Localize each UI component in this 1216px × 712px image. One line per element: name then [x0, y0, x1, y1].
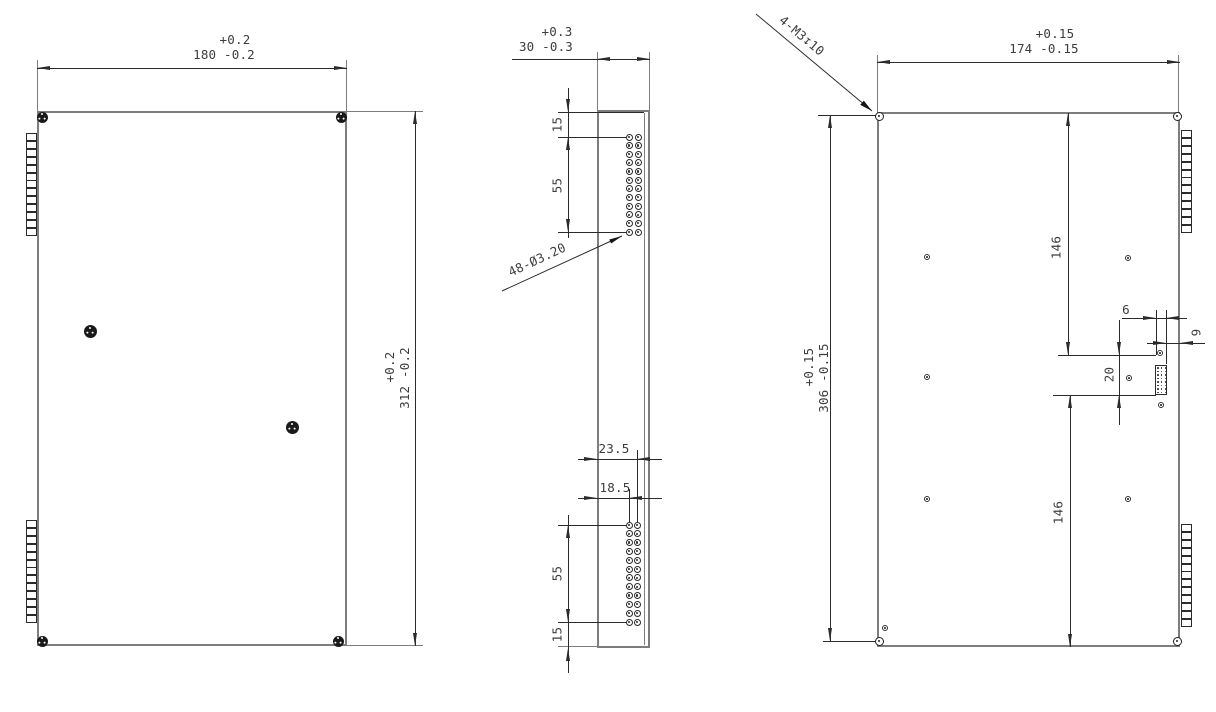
pin-hole: [634, 619, 641, 626]
connector-pin: [1181, 595, 1192, 603]
connector-footprint-dot: [1157, 371, 1159, 373]
mounting-hole: [1157, 350, 1163, 356]
pin-hole: [634, 592, 641, 599]
back-width-dimension: +0.15 174 -0.15: [999, 26, 1089, 56]
connector-pin: [1181, 130, 1192, 138]
connector-footprint-dot: [1157, 381, 1159, 383]
dimension-line: [558, 622, 629, 623]
connector-pin: [1181, 146, 1192, 154]
mounting-hole: [924, 254, 930, 260]
drawing-canvas: +0.2 180 -0.2 +0.2 312 -0.2 +0.3 30 -0.3…: [0, 0, 1216, 712]
corner-screw-hole: [1173, 637, 1182, 646]
connector-pin: [1181, 532, 1192, 540]
back-span-upper-dimension: 146: [1049, 233, 1064, 263]
dimension-arrow: [1143, 316, 1156, 320]
dimension-line: [877, 62, 1180, 63]
connector-pin: [26, 228, 37, 236]
connector-pin: [26, 615, 37, 623]
connector-pin: [26, 583, 37, 591]
connector-pin: [26, 204, 37, 212]
pin-hole: [626, 530, 633, 537]
connector-pin: [1181, 603, 1192, 611]
connector-pin: [26, 212, 37, 220]
side-offset-bottom-dimension: 15: [550, 620, 565, 650]
connector-pin: [26, 536, 37, 544]
connector-footprint-dot: [1165, 388, 1167, 390]
connector-pin: [26, 560, 37, 568]
side-width-value: 30 -0.3: [501, 39, 591, 54]
dimension-line: [818, 115, 877, 116]
dimension-arrow: [584, 457, 597, 461]
dimension-arrow: [1068, 395, 1072, 408]
dimension-line: [1119, 320, 1120, 425]
connector-pin: [26, 165, 37, 173]
front-height-tol-plus: +0.2: [382, 317, 397, 417]
mounting-hole: [924, 496, 930, 502]
dimension-line: [1058, 355, 1156, 356]
connector-pin: [26, 133, 37, 141]
pin-hole: [634, 557, 641, 564]
connector-pin: [1181, 154, 1192, 162]
pin-hole: [626, 574, 633, 581]
connector-footprint-dot: [1165, 367, 1167, 369]
dimension-arrow: [597, 57, 610, 61]
connector-pin: [1181, 611, 1192, 619]
edge-extension-line: [644, 113, 645, 645]
back-height-tol-plus: +0.15: [801, 317, 816, 417]
pin-hole: [635, 151, 642, 158]
connector-pin: [1181, 185, 1192, 193]
dimension-arrow: [1068, 634, 1072, 647]
mounting-hole: [924, 374, 930, 380]
dimension-arrow: [334, 66, 347, 70]
pin-hole: [626, 583, 633, 590]
connector-pin: [1181, 540, 1192, 548]
connector-pin: [26, 552, 37, 560]
connector-pin: [26, 528, 37, 536]
side-width-tol-plus: +0.3: [512, 24, 602, 39]
pin-hole: [626, 203, 633, 210]
pin-hole: [635, 142, 642, 149]
pin-hole: [626, 220, 633, 227]
dimension-arrow: [566, 137, 570, 150]
side-span-top-dimension: 55: [550, 171, 565, 201]
dimension-arrow: [828, 628, 832, 641]
leader-lines: [0, 0, 1216, 712]
connector-footprint-dot: [1165, 381, 1167, 383]
pin-hole: [626, 610, 633, 617]
front-width-value: 180 -0.2: [179, 47, 269, 62]
side-offset-top-dimension: 15: [550, 110, 565, 140]
connector-pin: [1181, 548, 1192, 556]
connector-pin: [1181, 579, 1192, 587]
back-width-value: 174 -0.15: [999, 41, 1089, 56]
connector-pin: [26, 157, 37, 165]
connector-pin: [1181, 619, 1192, 627]
dimension-arrow: [566, 609, 570, 622]
mounting-hole: [882, 625, 888, 631]
connector-footprint-dot: [1157, 388, 1159, 390]
pin-hole: [634, 522, 641, 529]
connector-pin: [26, 520, 37, 528]
mounting-hole: [1158, 402, 1164, 408]
edge-extension-line: [347, 645, 423, 646]
pin-hole: [626, 168, 633, 175]
pin-hole: [626, 151, 633, 158]
mounting-hole: [1125, 255, 1131, 261]
interior-screw: [286, 421, 299, 434]
pin-hole: [626, 548, 633, 555]
connector-pin: [26, 607, 37, 615]
thread-callout-leader: [756, 14, 872, 111]
pin-hole: [634, 610, 641, 617]
back-cutout-height-dimension: 20: [1102, 360, 1117, 390]
dimension-line: [558, 112, 644, 113]
side-span-bottom-dimension: 55: [550, 559, 565, 589]
connector-pin: [26, 141, 37, 149]
connector-pin: [1181, 587, 1192, 595]
connector-pin: [26, 591, 37, 599]
connector-pin: [1181, 170, 1192, 178]
pin-hole: [626, 557, 633, 564]
connector-pin: [1181, 524, 1192, 532]
pin-hole: [626, 177, 633, 184]
dimension-arrow: [1066, 113, 1070, 126]
dimension-arrow: [1153, 341, 1166, 345]
dimension-line: [512, 59, 650, 60]
dimension-arrow: [37, 66, 50, 70]
interior-screw: [84, 325, 97, 338]
hole-callout-arrow: [609, 236, 622, 244]
pin-hole: [634, 548, 641, 555]
connector-pin: [1181, 217, 1192, 225]
pin-hole: [626, 566, 633, 573]
pin-hole: [635, 159, 642, 166]
connector-footprint-dot: [1157, 374, 1159, 376]
back-height-value: 306 -0.15: [816, 328, 831, 428]
dimension-line: [37, 68, 347, 69]
dimension-arrow: [1166, 316, 1179, 320]
dimension-arrow: [1180, 341, 1193, 345]
dimension-arrow: [566, 648, 570, 661]
pin-hole: [634, 601, 641, 608]
corner-screw-hole: [1173, 112, 1182, 121]
front-width-tol-plus: +0.2: [190, 32, 280, 47]
connector-pin: [26, 188, 37, 196]
connector-pin: [26, 149, 37, 157]
connector-pin: [26, 220, 37, 228]
connector-footprint-dot: [1157, 385, 1159, 387]
corner-screw: [333, 636, 344, 647]
connector-pin: [26, 567, 37, 575]
pin-hole: [635, 203, 642, 210]
back-width-tol-plus: +0.15: [1010, 26, 1100, 41]
back-cutout-width-dimension: 6: [1116, 302, 1136, 317]
dimension-arrow: [1167, 60, 1180, 64]
connector-pin: [1181, 162, 1192, 170]
back-height-dimension: +0.15 306 -0.15: [801, 328, 831, 428]
dimension-line: [629, 489, 630, 522]
connector-pin: [26, 173, 37, 181]
connector-pin: [1181, 138, 1192, 146]
connector-pin: [26, 599, 37, 607]
connector-pin: [1181, 225, 1192, 233]
pin-hole: [626, 539, 633, 546]
pin-hole: [635, 134, 642, 141]
connector-footprint-dot: [1157, 378, 1159, 380]
dimension-line: [1068, 113, 1069, 355]
corner-screw: [37, 636, 48, 647]
connector-pin: [1181, 193, 1192, 201]
side-edge-dist-a-dimension: 23.5: [589, 441, 639, 456]
dimension-arrow: [637, 57, 650, 61]
side-width-dimension: +0.3 30 -0.3: [501, 24, 591, 54]
dimension-line: [1156, 310, 1157, 355]
mounting-hole: [1125, 496, 1131, 502]
dimension-arrow: [566, 99, 570, 112]
dimension-arrow: [413, 633, 417, 646]
pin-hole: [626, 194, 633, 201]
corner-screw-hole: [875, 112, 884, 121]
dimension-line: [558, 232, 629, 233]
side-edge-dist-b-dimension: 18.5: [590, 480, 640, 495]
pin-hole: [635, 220, 642, 227]
dimension-arrow: [637, 457, 650, 461]
pin-hole: [634, 566, 641, 573]
pin-hole: [635, 194, 642, 201]
corner-screw-hole: [875, 637, 884, 646]
pin-hole: [635, 185, 642, 192]
pin-hole: [626, 592, 633, 599]
dimension-arrow: [566, 219, 570, 232]
connector-pin: [26, 180, 37, 188]
dimension-arrow: [566, 525, 570, 538]
connector-pin: [1181, 177, 1192, 185]
dimension-arrow: [413, 111, 417, 124]
pin-hole: [635, 177, 642, 184]
mounting-hole: [1126, 375, 1132, 381]
dimension-arrow: [828, 115, 832, 128]
pin-hole: [635, 211, 642, 218]
back-span-lower-dimension: 146: [1051, 498, 1066, 528]
front-width-dimension: +0.2 180 -0.2: [179, 32, 269, 62]
connector-pin: [1181, 571, 1192, 579]
dimension-line: [823, 641, 877, 642]
dimension-arrow: [1117, 395, 1121, 408]
front-height-dimension: +0.2 312 -0.2: [382, 328, 412, 428]
edge-extension-line: [558, 646, 597, 647]
dimension-line: [415, 111, 416, 646]
pin-hole: [626, 522, 633, 529]
dimension-arrow: [1117, 342, 1121, 355]
connector-footprint-dot: [1157, 367, 1159, 369]
connector-footprint-dot: [1165, 374, 1167, 376]
pin-hole: [635, 168, 642, 175]
pin-hole: [626, 619, 633, 626]
connector-pin: [1181, 201, 1192, 209]
corner-screw: [336, 112, 347, 123]
edge-extension-line: [347, 111, 423, 112]
front-height-value: 312 -0.2: [397, 328, 412, 428]
connector-pin: [1181, 556, 1192, 564]
dimension-line: [1070, 395, 1071, 647]
connector-pin: [26, 544, 37, 552]
pin-hole: [626, 229, 633, 236]
connector-pin: [26, 575, 37, 583]
connector-pin: [1181, 209, 1192, 217]
dimension-arrow: [1066, 342, 1070, 355]
pin-hole: [635, 229, 642, 236]
dimension-line: [830, 115, 831, 641]
dimension-arrow: [877, 60, 890, 64]
connector-pin: [26, 196, 37, 204]
connector-pin: [1181, 564, 1192, 572]
dimension-arrow: [629, 496, 642, 500]
dimension-arrow: [584, 496, 597, 500]
connector-footprint-dot: [1157, 392, 1159, 394]
pin-hole: [626, 601, 633, 608]
pin-hole: [626, 134, 633, 141]
corner-screw: [37, 112, 48, 123]
